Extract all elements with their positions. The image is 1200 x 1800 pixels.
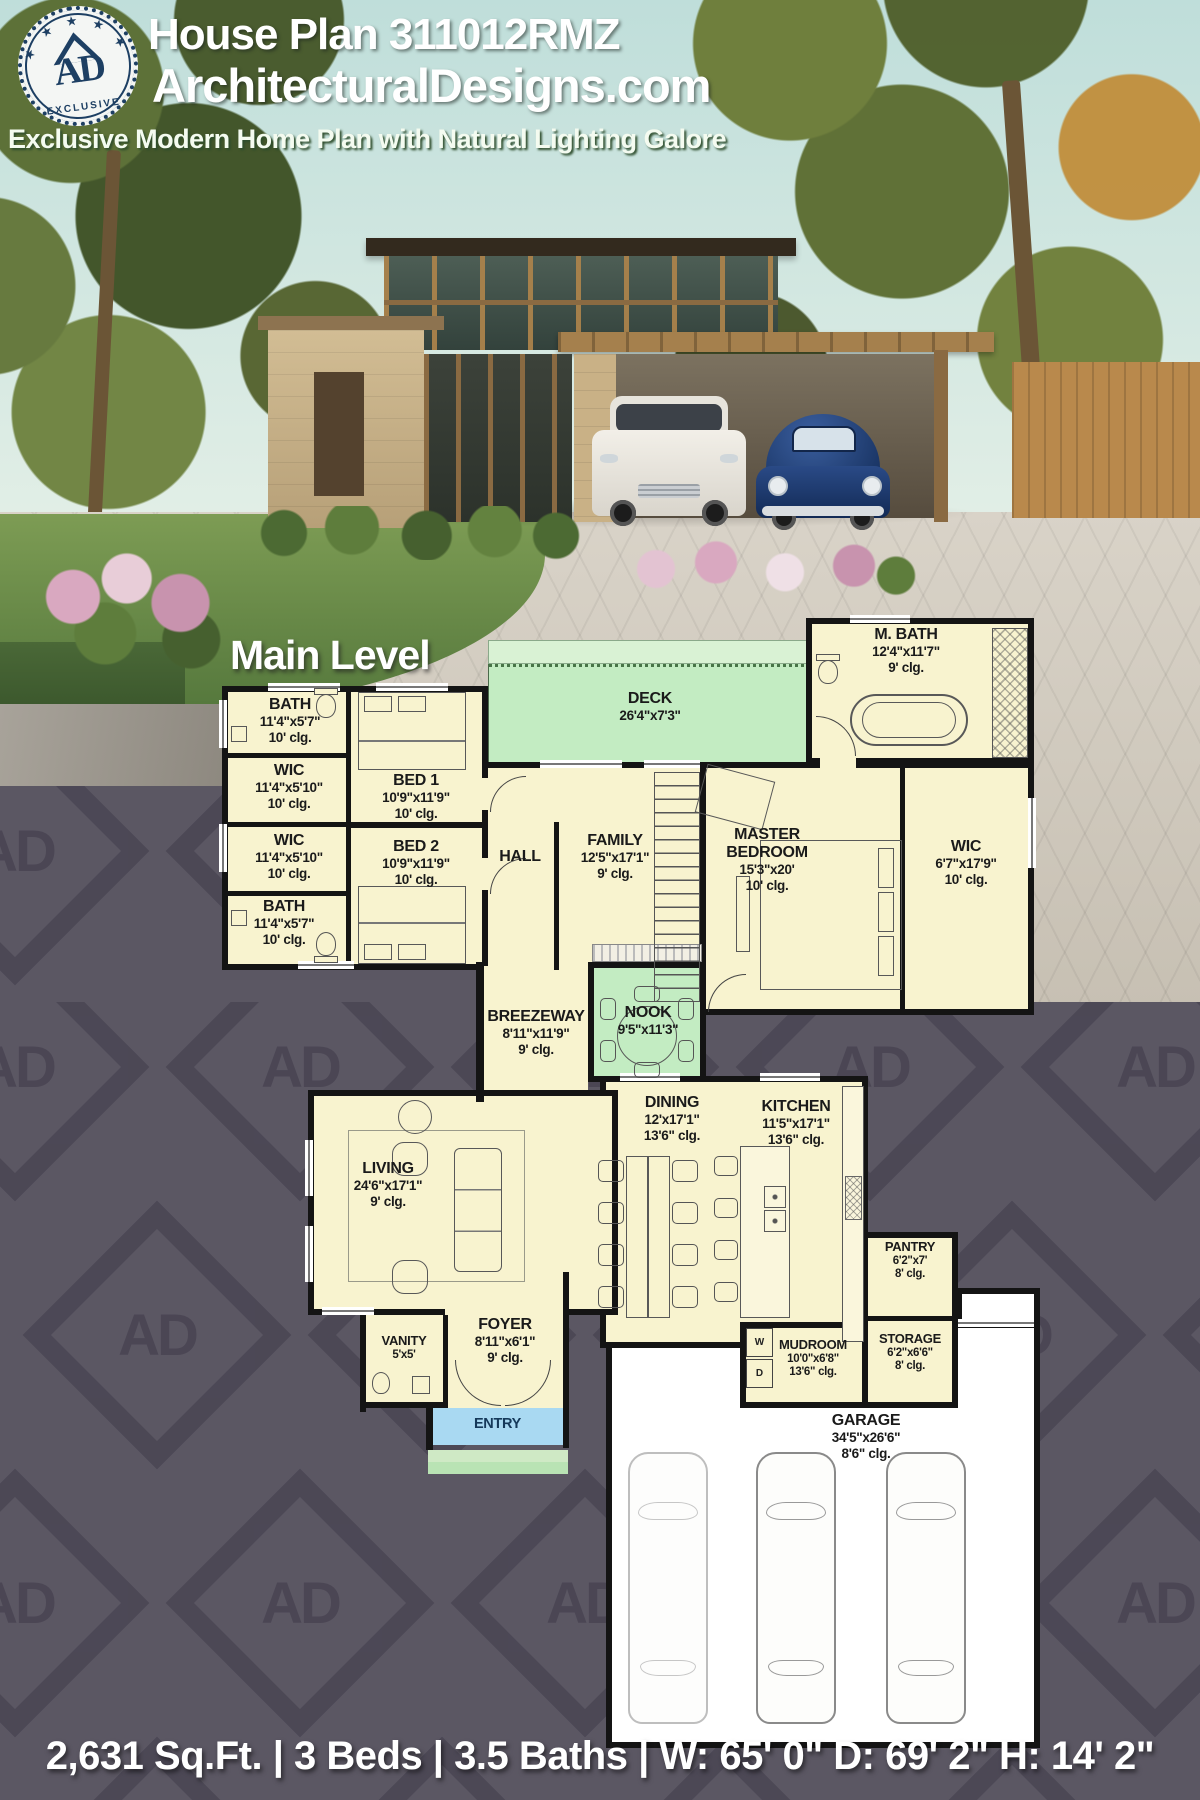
room-label-bed2: BED 210'9"x11'9"10' clg. [352,838,480,887]
flower-bush [30,548,245,670]
subtitle: Exclusive Modern Home Plan with Natural … [8,124,726,155]
room-label-bath1: BATH11'4"x5'7"10' clg. [232,696,348,745]
suv-headlight [600,454,618,463]
suv-windows [616,404,722,432]
page-title: House Plan 311012RMZ [148,10,620,60]
room-label-living: LIVING24'6"x17'1"9' clg. [318,1160,458,1209]
chair-icon [678,1040,694,1062]
white-suv [592,396,746,526]
suv-grille [638,484,700,498]
window [305,1226,313,1282]
room-label-family: FAMILY12'5"x17'1"9' clg. [556,832,674,881]
stool-icon [714,1156,738,1176]
chair-icon [598,1202,624,1224]
pillow-icon [364,944,392,960]
chair-icon [672,1160,698,1182]
wood-post [934,350,948,522]
room-label-foyer: FOYER8'11"x6'1"9' clg. [448,1316,562,1365]
chair-icon [634,986,660,1002]
wall [563,1272,569,1448]
armchair-icon [392,1260,428,1294]
ad-watermark-icon: AD [1021,1002,1200,1201]
ad-watermark-icon: AD [1021,1469,1200,1738]
ad-watermark-icon: AD [1163,1201,1200,1470]
star-icon: ★ [65,13,79,30]
stairs-icon [654,772,700,1002]
promo-image: ADAD ADADADADADADADADADADADADADADADADADA… [0,0,1200,1800]
ad-watermark-icon: AD [23,1201,292,1470]
chair-icon [634,1062,660,1078]
beetle-bumper [762,506,884,516]
sofa-icon [454,1148,502,1272]
window [760,1073,820,1081]
room-label-vanity: VANITY5'x5' [368,1334,440,1362]
blanket-line [359,740,465,742]
chair-icon [672,1202,698,1224]
pillow-icon [878,848,894,888]
toilet-tank [314,688,338,695]
ad-watermark-icon: AD [0,786,149,985]
ad-watermark-icon: AD [0,1469,149,1738]
purple-panel-left: ADAD [0,786,228,1004]
wall [228,822,348,827]
sliding-door [540,760,622,768]
pillow-icon [364,696,392,712]
chair-icon [598,1244,624,1266]
window [219,824,227,872]
car-outline-icon [628,1452,708,1724]
dining-table-icon [626,1156,648,1318]
room-label-nook: NOOK9'5"x11'3" [592,1004,704,1038]
stats-text: 2,631 Sq.Ft. | 3 Beds | 3.5 Baths | W: 6… [46,1734,1154,1778]
sink-icon [412,1376,430,1394]
house-left-roof [258,316,444,330]
stool-icon [714,1240,738,1260]
room-label-breezeway: BREEZEWAY8'11"x11'9"9' clg. [470,1008,602,1057]
toilet-tank [314,956,338,963]
ad-watermark-icon: AD [0,1002,149,1201]
house-roof [366,238,796,256]
purple-gap [222,970,480,1004]
room-label-storage: STORAGE6'2"x6'6"8' clg. [864,1332,956,1373]
kitchen-island-icon [740,1146,790,1318]
wood-fence [1012,362,1200,518]
deck-edge [488,640,812,664]
room-label-deck: DECK26'4"x7'3" [560,690,740,724]
front-bushes [250,506,590,560]
chair-icon [598,1160,624,1182]
blanket-line [359,922,465,924]
room-label-bath2: BATH11'4"x5'7"10' clg. [228,898,340,947]
room-label-wic2: WIC11'4"x5'10"10' clg. [230,832,348,881]
suv-wheel [610,500,636,526]
stats-bar: 2,631 Sq.Ft. | 3 Beds | 3.5 Baths | W: 6… [0,1734,1200,1779]
door-gap [820,758,856,770]
pillow-icon [878,892,894,932]
wall [228,753,348,758]
room-label-pantry: PANTRY6'2"x7'8' clg. [866,1240,954,1281]
wall [346,822,482,828]
dining-table-icon [648,1156,670,1318]
pillow-icon [398,944,426,960]
pillow-icon [398,696,426,712]
room-label-entry: ENTRY [432,1416,563,1433]
stool-icon [714,1282,738,1302]
sliding-door [644,760,700,768]
window [850,615,910,623]
chair-icon [600,1040,616,1062]
shower-icon [992,628,1028,758]
room-label-garage: GARAGE34'5"x26'6"8'6" clg. [792,1412,940,1461]
toilet-icon [372,1372,390,1394]
bathtub-inner [862,702,956,738]
beetle-windshield [792,426,856,452]
house-door [314,372,364,496]
wall [228,891,348,896]
room-label-wic1: WIC11'4"x5'10"10' clg. [230,762,348,811]
room-label-hall: HALL [484,848,556,866]
ad-watermark-icon: AD [166,786,228,985]
chair-icon [598,1286,624,1308]
window [1028,798,1036,868]
chair-icon [672,1286,698,1308]
ad-exclusive-badge: ★ ★ ★ ★ ★ AD EXCLUSIVE [8,0,148,136]
carport-roof [558,332,994,352]
ad-watermark-icon: AD [166,1469,435,1738]
window [376,683,448,691]
wall [360,1402,448,1408]
pillow-icon [878,936,894,976]
window [305,1140,313,1196]
house-glass-doors [424,354,572,522]
site-name: ArchitecturalDesigns.com [152,58,710,113]
beetle-headlight [862,476,882,496]
beetle-headlight [768,476,788,496]
toilet-icon [818,660,838,684]
car-outline-icon [886,1452,966,1724]
suv-wheel [702,500,728,526]
window [219,700,227,748]
suv-headlight [720,454,738,463]
room-label-master: MASTER BEDROOM15'3"x20'10' clg. [706,826,828,893]
room-label-mbath: M. BATH12'4"x11'7"9' clg. [842,626,970,675]
cooktop-icon [764,1186,786,1208]
stool-icon [714,1198,738,1218]
room-label-dining: DINING12'x17'1"13'6" clg. [604,1094,740,1143]
entry-porch-step [428,1450,568,1462]
flower-bush [620,536,920,602]
window [322,1307,374,1315]
watermark-field: ADAD [0,786,228,1004]
room-label-bed1: BED 110'9"x11'9"10' clg. [352,772,480,821]
level-label: Main Level [230,632,430,679]
room-label-mudroom: MUDROOM10'0"x6'8"13'6" clg. [760,1338,866,1379]
toilet-tank [816,654,840,661]
cooktop-icon [764,1210,786,1232]
kitchen-sink-icon [845,1176,862,1220]
blue-beetle-car [756,414,890,526]
wall [862,1316,958,1321]
side-table-icon [398,1100,432,1134]
car-outline-icon [756,1452,836,1724]
entry-porch-step [428,1462,568,1474]
room-label-mwic: WIC6'7"x17'9"10' clg. [904,838,1028,887]
door-gap [481,778,489,810]
room-label-kitchen: KITCHEN11'5"x17'1"13'6" clg. [726,1098,866,1147]
wall [360,1312,366,1412]
garage-door [958,1319,1034,1327]
chair-icon [672,1244,698,1266]
